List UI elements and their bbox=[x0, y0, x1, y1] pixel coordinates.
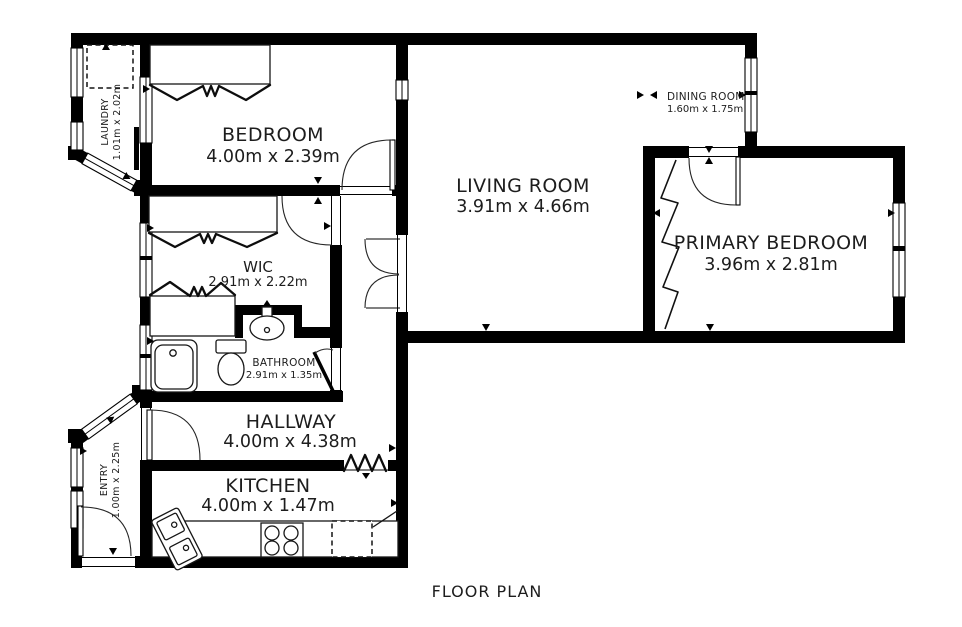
room-label-bathroom: BATHROOM bbox=[252, 357, 315, 369]
floor-plan-drawing: BEDROOM 4.00m x 2.39m LIVING ROOM 3.91m … bbox=[0, 0, 962, 627]
refrigerator bbox=[332, 521, 372, 557]
room-label-dining-room: DINING ROOM bbox=[667, 91, 745, 103]
floor-plan-page: BEDROOM 4.00m x 2.39m LIVING ROOM 3.91m … bbox=[0, 0, 962, 627]
room-dims-kitchen: 4.00m x 1.47m bbox=[201, 496, 335, 516]
room-dims-entry: 1.00m x 2.25m bbox=[111, 442, 122, 518]
room-label-entry: ENTRY bbox=[99, 464, 110, 496]
wic-door bbox=[282, 196, 342, 245]
washing-machine bbox=[87, 45, 133, 88]
room-dims-dining-room: 1.60m x 1.75m bbox=[667, 104, 743, 115]
toilet bbox=[216, 340, 246, 385]
room-label-laundry: LAUNDRY bbox=[100, 98, 111, 145]
primary-bedroom-window bbox=[893, 203, 905, 297]
floor-plan-title: FLOOR PLAN bbox=[432, 582, 543, 601]
room-dims-bedroom: 4.00m x 2.39m bbox=[206, 147, 340, 167]
room-dims-primary-bedroom: 3.96m x 2.81m bbox=[704, 255, 838, 275]
dining-window bbox=[745, 58, 757, 132]
radiator bbox=[344, 455, 388, 479]
primary-bedroom-door bbox=[689, 146, 740, 205]
room-dims-laundry: 1.01m x 2.02m bbox=[112, 84, 123, 160]
bedroom-closet bbox=[150, 45, 270, 100]
stove bbox=[261, 523, 303, 557]
laundry-window-lower bbox=[71, 122, 83, 150]
front-door bbox=[78, 506, 135, 568]
bedroom-door bbox=[340, 140, 395, 196]
wic-closet-bottom bbox=[150, 282, 235, 336]
wic-closet-top bbox=[149, 196, 277, 247]
room-label-primary-bedroom: PRIMARY BEDROOM bbox=[674, 232, 868, 254]
entry-bay-window bbox=[73, 388, 145, 445]
laundry-window-upper bbox=[71, 48, 83, 97]
room-dims-hallway: 4.00m x 4.38m bbox=[223, 432, 357, 452]
room-label-living-room: LIVING ROOM bbox=[456, 175, 590, 197]
room-label-kitchen: KITCHEN bbox=[225, 475, 310, 497]
room-dims-living-room: 3.91m x 4.66m bbox=[456, 197, 590, 217]
entry-hallway-door bbox=[140, 408, 200, 460]
room-label-bedroom: BEDROOM bbox=[222, 124, 324, 146]
bathtub bbox=[151, 340, 197, 392]
room-label-wic: WIC bbox=[243, 258, 273, 276]
room-dims-bathroom: 2.91m x 1.35m bbox=[246, 370, 322, 381]
room-dims-wic: 2.91m x 2.22m bbox=[208, 275, 307, 290]
bedroom-interior-window bbox=[396, 80, 408, 100]
windows bbox=[71, 48, 905, 528]
living-room-double-door bbox=[365, 235, 408, 312]
room-label-hallway: HALLWAY bbox=[246, 411, 336, 433]
